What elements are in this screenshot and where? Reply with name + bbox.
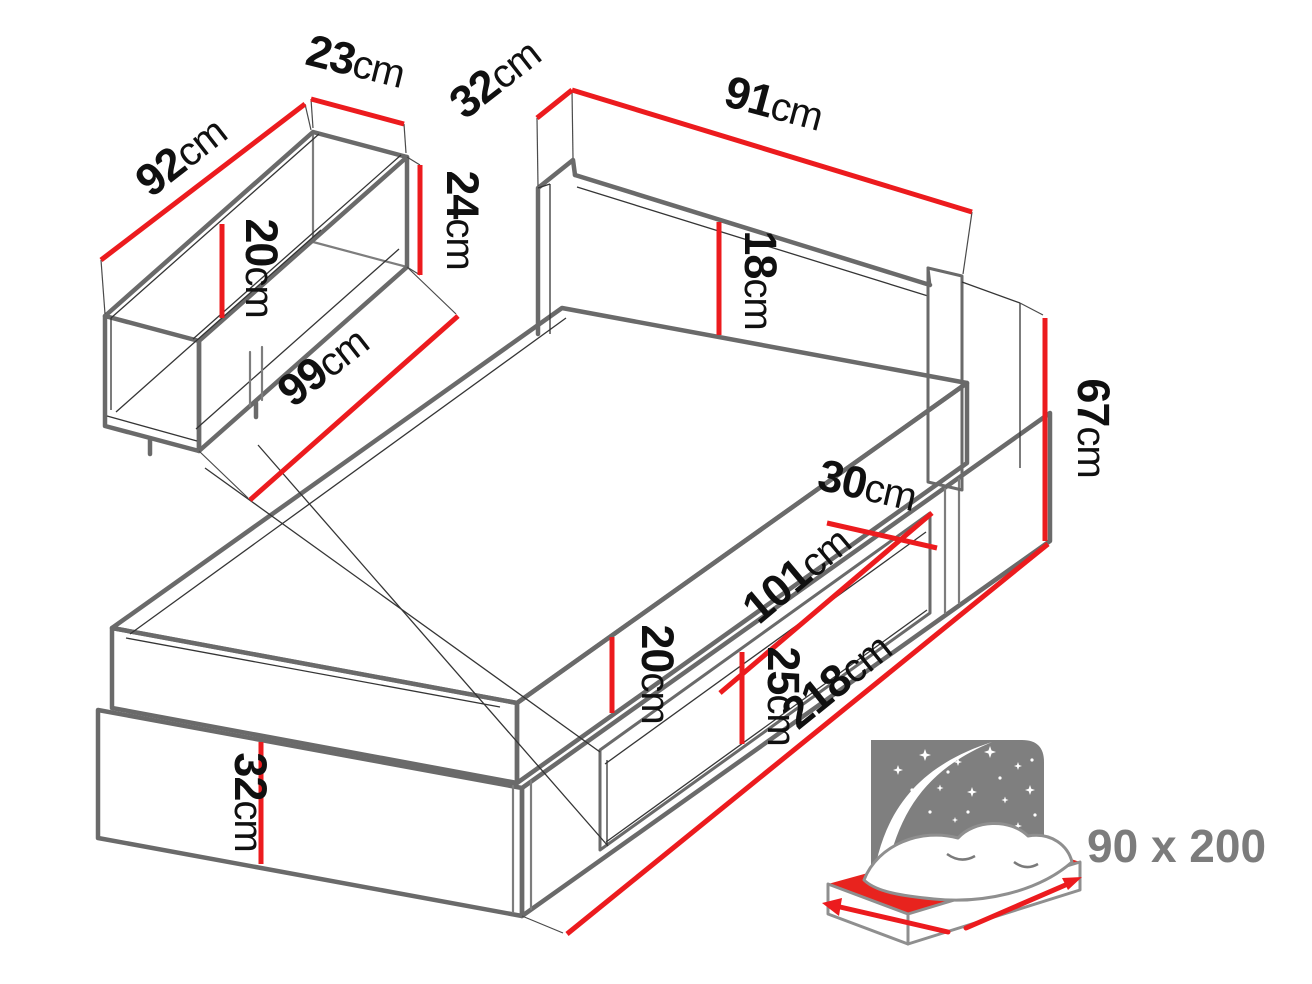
dim-label-drawer-length: 92cm (126, 105, 236, 206)
dim-label-drawer-inner-depth: 20cm (236, 218, 287, 317)
headboard-right-step (928, 268, 930, 285)
star-dot-icon (998, 776, 1001, 779)
star-dot-icon (966, 810, 969, 813)
mattress-crease (126, 638, 500, 707)
size-badge-label: 90 x 200 (1087, 820, 1266, 872)
dim-line-headboard-top-depth (537, 90, 572, 118)
dim-label-headboard-side-height: 67cm (1068, 378, 1119, 477)
star-dot-icon (1030, 758, 1033, 761)
dimension-labels: 92cm 23cm 24cm 20cm 99cm 32cm 91cm 18cm … (126, 24, 1119, 851)
dim-label-niche-depth: 30cm (813, 449, 921, 521)
bed-dimension-diagram: 92cm 23cm 24cm 20cm 99cm 32cm 91cm 18cm … (0, 0, 1312, 984)
star-dot-icon (946, 770, 949, 773)
dim-label-niche-length: 101cm (732, 515, 859, 633)
bed-size-icon: 90 x 200 (822, 740, 1266, 944)
dim-line-drawer-top-width (311, 99, 404, 124)
dim-label-mattress-height: 20cm (632, 624, 683, 723)
bed-dimension-diagram-page: 92cm 23cm 24cm 20cm 99cm 32cm 91cm 18cm … (0, 0, 1312, 984)
drawer-left-end-face (105, 316, 199, 451)
dim-label-headboard-width: 91cm (719, 66, 828, 141)
star-dot-icon (910, 788, 913, 791)
bed-base-front-face (98, 710, 522, 916)
dim-label-headboard-above-mattress: 18cm (735, 230, 786, 329)
mattress-top-face (112, 308, 967, 703)
star-dot-icon (928, 810, 931, 813)
dim-label-drawer-front-height: 24cm (437, 170, 488, 269)
pointer-line (258, 445, 608, 846)
dim-label-drawer-top-width: 23cm (301, 24, 410, 98)
mattress-front-face (112, 628, 517, 783)
dim-label-base-front-height: 32cm (225, 752, 276, 851)
dim-label-headboard-top-depth: 32cm (440, 27, 550, 128)
star-dot-icon (1033, 813, 1036, 816)
base-back-top-edge (962, 282, 1020, 303)
